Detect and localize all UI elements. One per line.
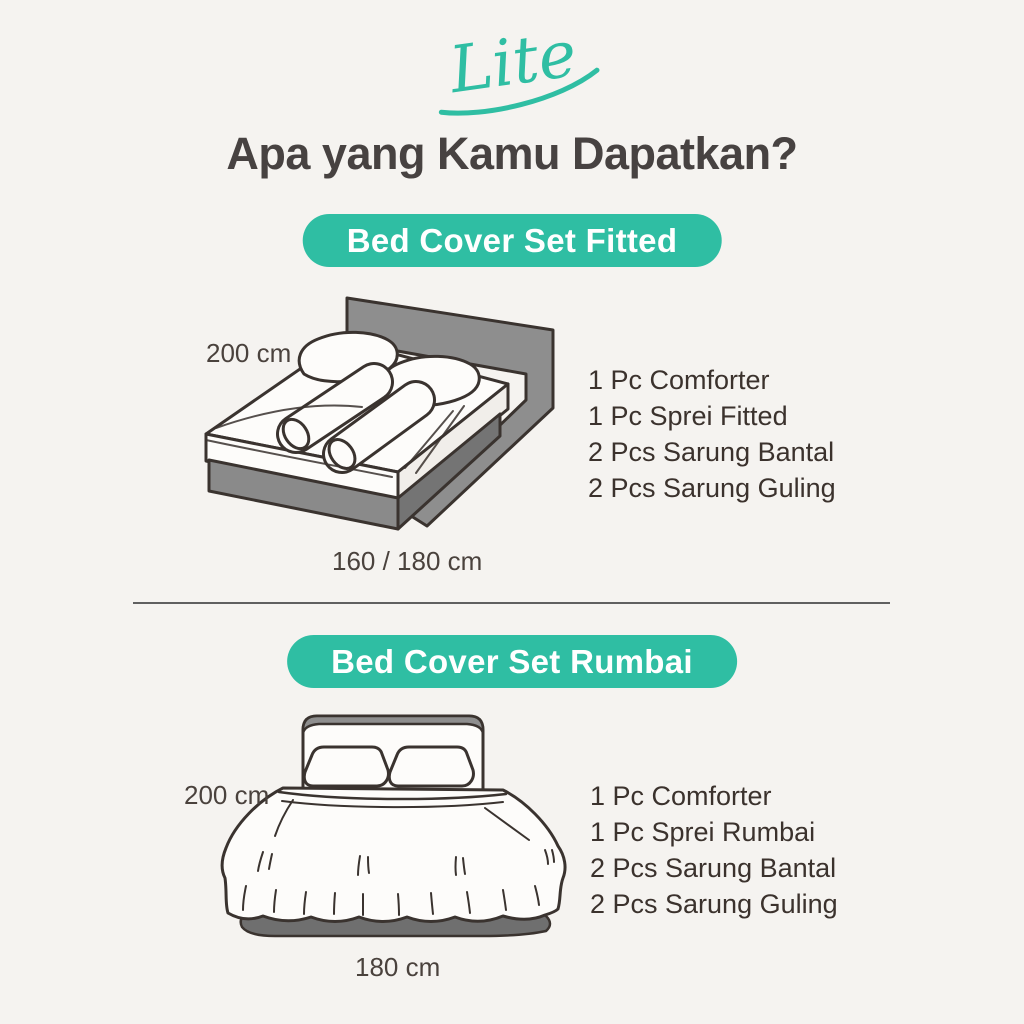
rumbai-height-label: 200 cm bbox=[184, 780, 269, 811]
brand-logo-text: Lite bbox=[444, 17, 581, 108]
list-item: 2 Pcs Sarung Bantal bbox=[590, 850, 838, 886]
rumbai-bed-illustration bbox=[213, 700, 575, 952]
section-divider bbox=[133, 602, 890, 604]
brand-logo-script-icon: Lite bbox=[402, 14, 622, 118]
list-item: 2 Pcs Sarung Bantal bbox=[588, 434, 836, 470]
rumbai-width-label: 180 cm bbox=[355, 952, 440, 983]
badge-bed-cover-set-fitted: Bed Cover Set Fitted bbox=[303, 214, 722, 267]
fitted-width-label: 160 / 180 cm bbox=[332, 546, 482, 577]
fitted-bed-illustration bbox=[192, 282, 574, 534]
list-item: 1 Pc Comforter bbox=[588, 362, 836, 398]
list-item: 1 Pc Sprei Fitted bbox=[588, 398, 836, 434]
list-item: 1 Pc Sprei Rumbai bbox=[590, 814, 838, 850]
infographic-canvas: Lite Apa yang Kamu Dapatkan? Bed Cover S… bbox=[0, 0, 1024, 1024]
rumbai-item-list: 1 Pc Comforter 1 Pc Sprei Rumbai 2 Pcs S… bbox=[590, 778, 838, 922]
list-item: 2 Pcs Sarung Guling bbox=[588, 470, 836, 506]
badge-bed-cover-set-rumbai: Bed Cover Set Rumbai bbox=[287, 635, 737, 688]
page-title: Apa yang Kamu Dapatkan? bbox=[0, 128, 1024, 180]
fitted-item-list: 1 Pc Comforter 1 Pc Sprei Fitted 2 Pcs S… bbox=[588, 362, 836, 506]
brand-logo: Lite bbox=[0, 14, 1024, 123]
list-item: 2 Pcs Sarung Guling bbox=[590, 886, 838, 922]
fitted-height-label: 200 cm bbox=[206, 338, 291, 369]
list-item: 1 Pc Comforter bbox=[590, 778, 838, 814]
